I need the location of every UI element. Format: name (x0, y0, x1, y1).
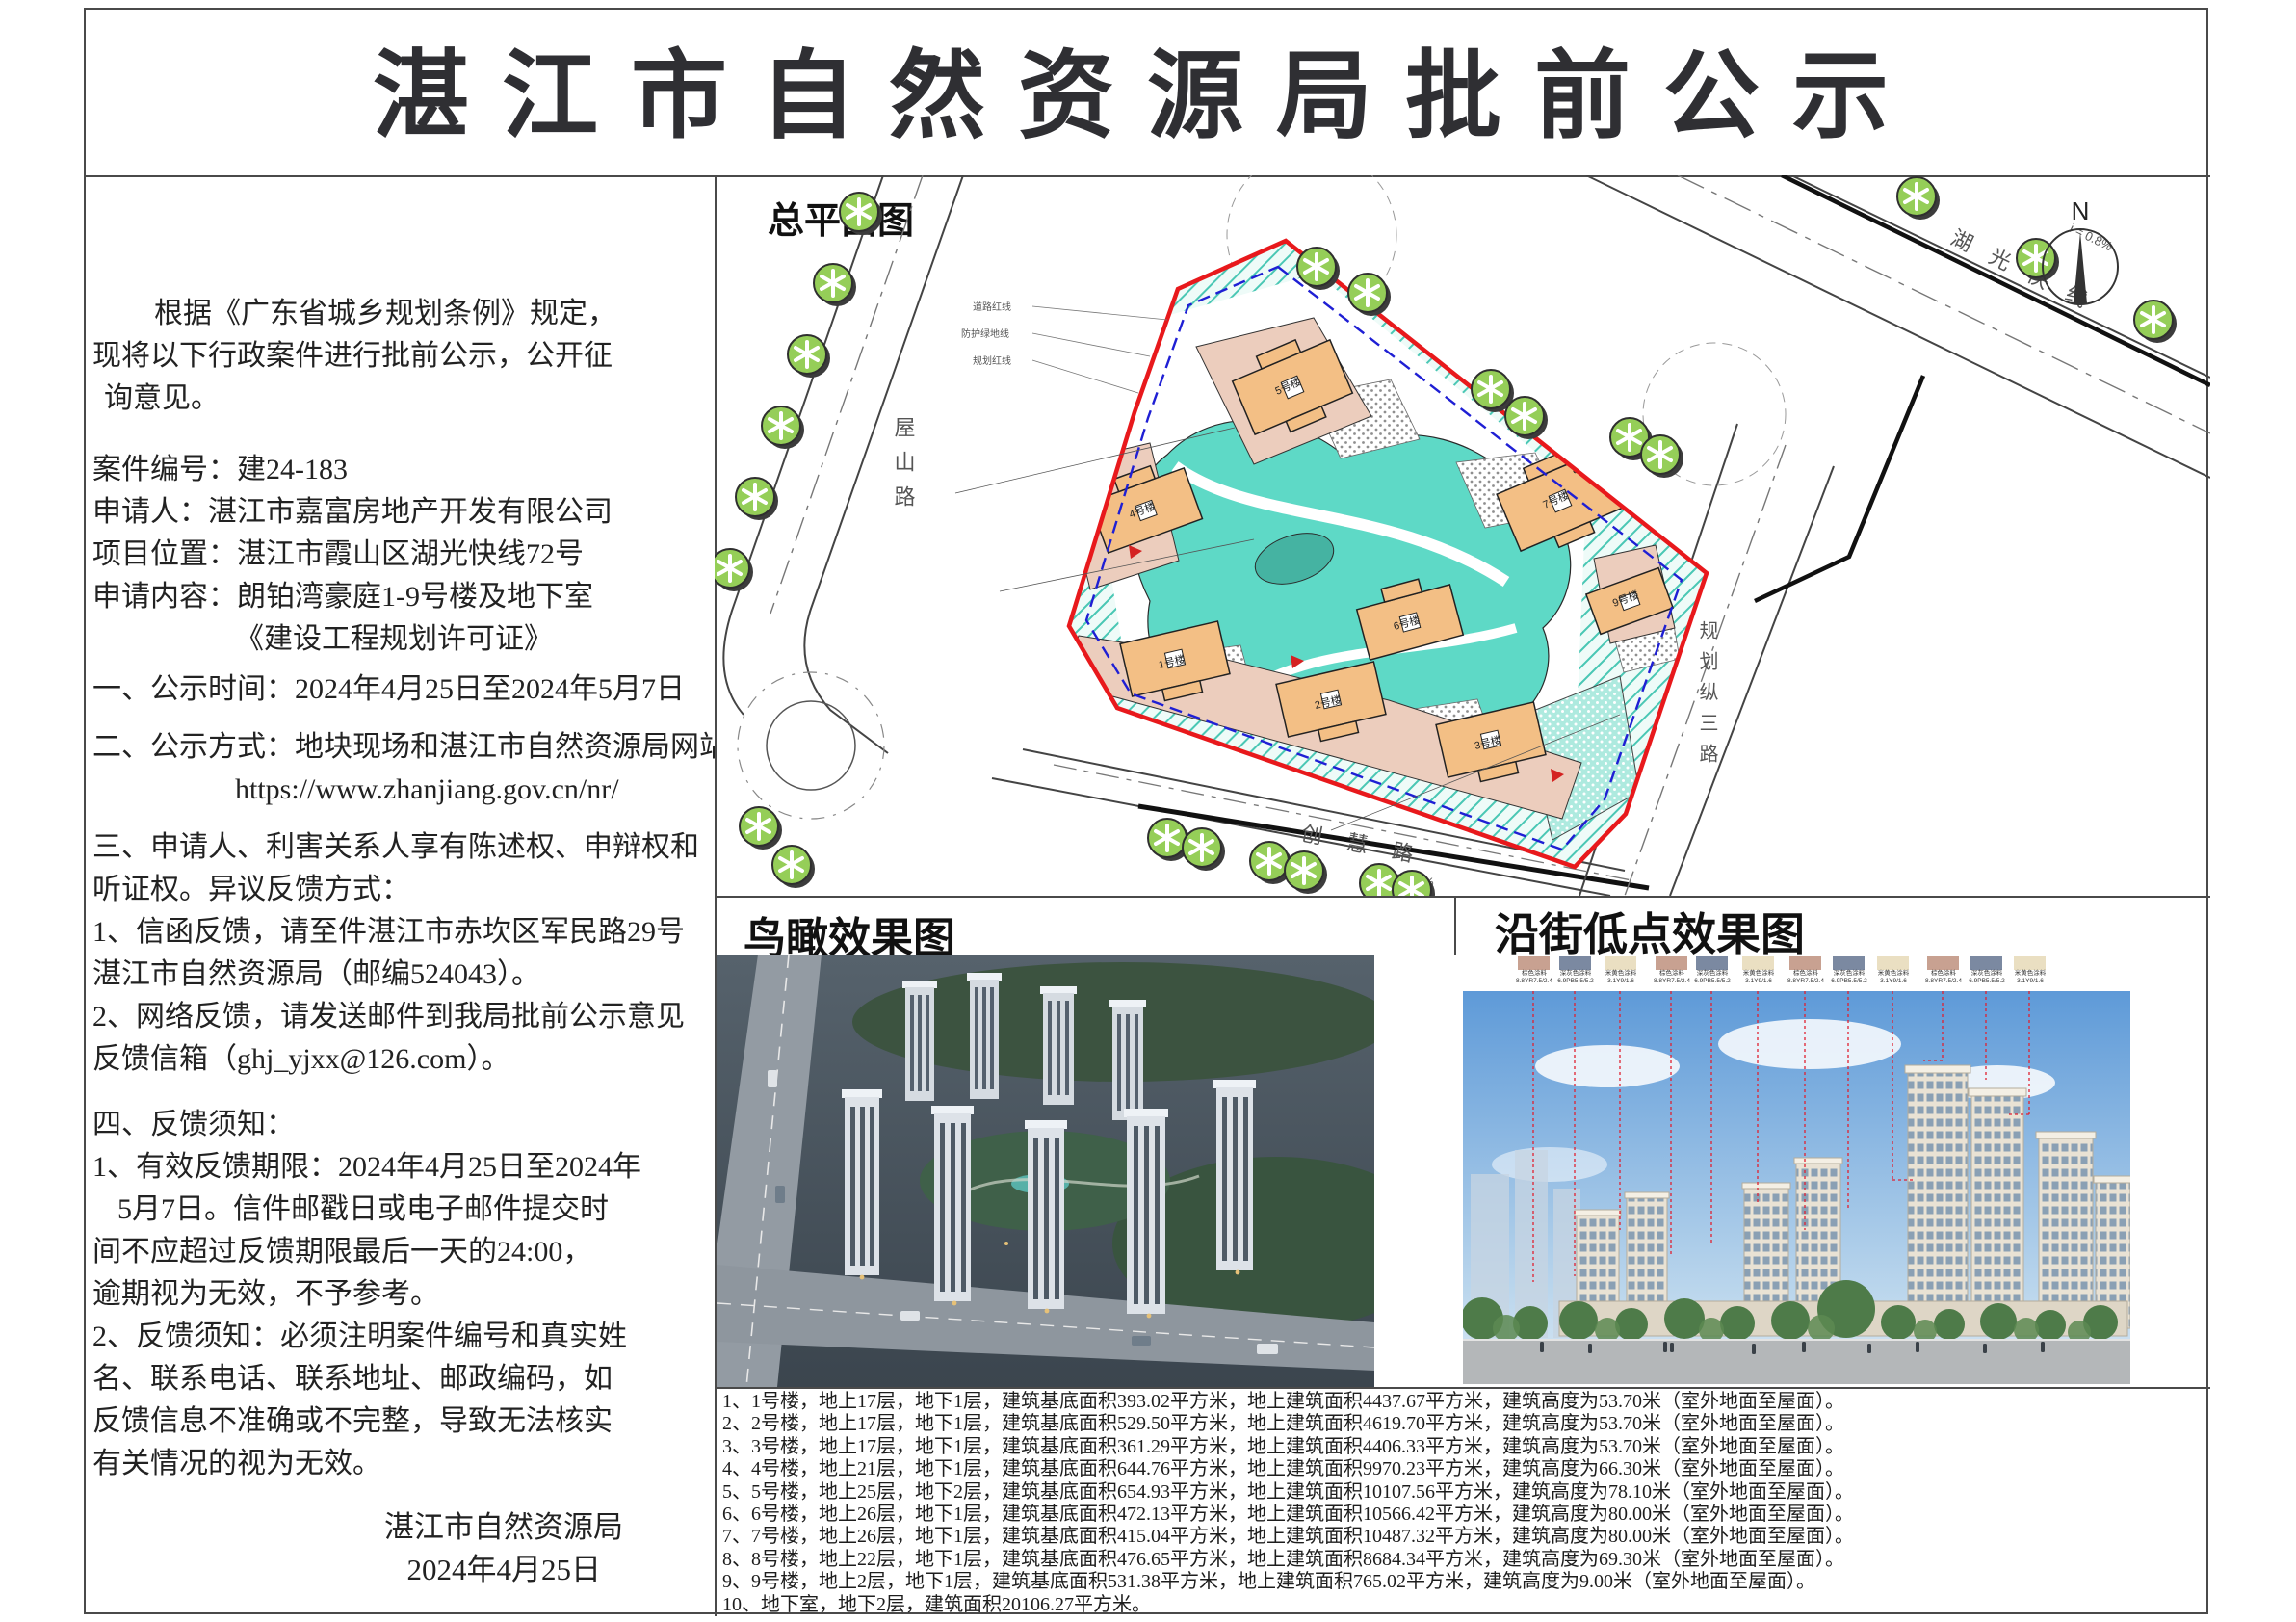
svg-text:防护绿地线: 防护绿地线 (961, 327, 1009, 340)
swatch-color (1559, 956, 1591, 970)
notice-line: 案件编号：建24-183 (92, 449, 715, 491)
signature-org: 湛江市自然资源局 (92, 1506, 715, 1549)
note-line: 1、1号楼，地上17层，地下1层，建筑基底面积393.02平方米，地上建筑面积4… (722, 1391, 2205, 1413)
plan-render-divider (715, 896, 2210, 898)
notice-line: 询意见。 (92, 378, 715, 420)
notice-line: 反馈信息不准确或不完整，导致无法核实 (92, 1400, 715, 1443)
notice-line: 2、反馈须知：必须注明案件编号和真实姓 (92, 1316, 715, 1358)
public-notice-sheet: 湛江市自然资源局批前公示 根据《广东省城乡规划条例》规定， 现将以下行政案件进行… (0, 0, 2296, 1622)
notice-line: 《建设工程规划许可证》 (92, 618, 715, 661)
notice-line: 1、信函反馈，请至件湛江市赤坎区军民路29号 (92, 911, 715, 954)
notice-line: 根据《广东省城乡规划条例》规定， (92, 293, 715, 335)
road-label-wushan: 屋山路 (892, 416, 916, 520)
note-line: 6、6号楼，地上26层，地下1层，建筑基底面积472.13平方米，地上建筑面积1… (722, 1504, 2205, 1526)
material-swatch: 棕色涂料8.8YR7.5/2.4 (1518, 956, 1550, 984)
material-swatch: 深灰色涂料6.9PB5.5/5.2 (1970, 956, 2002, 984)
material-swatch: 深灰色涂料6.9PB5.5/5.2 (1833, 956, 1865, 984)
material-swatch: 米黄色涂料3.1Y9/1.6 (1605, 956, 1636, 984)
note-line: 4、4号楼，地上21层，地下1层，建筑基底面积644.76平方米，地上建筑面积9… (722, 1458, 2205, 1480)
notice-line: 间不应超过反馈期限最后一天的24:00， (92, 1231, 715, 1273)
note-line: 8、8号楼，地上22层，地下1层，建筑基底面积476.65平方米，地上建筑面积8… (722, 1549, 2205, 1571)
notice-line: 有关情况的视为无效。 (92, 1443, 715, 1485)
notice-text-column: 根据《广东省城乡规划条例》规定， 现将以下行政案件进行批前公示，公开征 询意见。… (92, 177, 715, 1614)
note-line: 2、2号楼，地上17层，地下1层，建筑基底面积529.50平方米，地上建筑面积4… (722, 1413, 2205, 1435)
notice-line: 名、联系电话、联系地址、邮政编码，如 (92, 1358, 715, 1400)
slope-label-1: i = 0.8% (2068, 221, 2116, 253)
material-swatch: 米黄色涂料3.1Y9/1.6 (1877, 956, 1909, 984)
note-line: 9、9号楼，地上2层，地下1层，建筑基底面积531.38平方米，地上建筑面积76… (722, 1571, 2205, 1593)
svg-text:规划红线: 规划红线 (973, 354, 1011, 367)
material-swatch: 深灰色涂料6.9PB5.5/5.2 (1696, 956, 1728, 984)
render-panels-divider (1454, 896, 1456, 955)
svg-text:8号楼: 8号楼 (1570, 454, 1600, 477)
notice-line: 听证权。异议反馈方式： (92, 869, 715, 911)
notice-line: 二、公示方式：地块现场和湛江市自然资源局网站 (92, 726, 715, 769)
notice-line: 申请人：湛江市嘉富房地产开发有限公司 (92, 491, 715, 534)
material-swatch: 棕色涂料8.8YR7.5/2.4 (1789, 956, 1821, 984)
material-swatch: 棕色涂料8.8YR7.5/2.4 (1927, 956, 1959, 984)
swatch-color (1605, 956, 1636, 970)
swatch-color (1742, 956, 1774, 970)
swatch-color (1656, 956, 1687, 970)
swatch-color (1877, 956, 1909, 970)
swatch-color (2014, 956, 2046, 970)
material-swatch: 米黄色涂料3.1Y9/1.6 (2014, 956, 2046, 984)
note-line: 7、7号楼，地上26层，地下1层，建筑基底面积415.04平方米，地上建筑面积1… (722, 1526, 2205, 1548)
notice-line: https://www.zhanjiang.gov.cn/nr/ (92, 769, 715, 811)
site-plan-drawing: 1号楼 2号楼 3号楼 4号楼 5号楼 6号楼 7号楼 8号楼 9号楼 (715, 175, 2210, 896)
swatch-color (1696, 956, 1728, 970)
material-swatch: 深灰色涂料6.9PB5.5/5.2 (1559, 956, 1591, 984)
notice-line: 申请内容：朗铂湾豪庭1-9号楼及地下室 (92, 576, 715, 618)
material-swatch: 棕色涂料8.8YR7.5/2.4 (1656, 956, 1687, 984)
notice-line: 三、申请人、利害关系人享有陈述权、申辩权和 (92, 826, 715, 869)
street-road (1463, 1340, 2130, 1384)
notice-line: 四、反馈须知： (92, 1104, 715, 1146)
note-line: 5、5号楼，地上25层，地下2层，建筑基底面积654.93平方米，地上建筑面积1… (722, 1481, 2205, 1504)
notice-line: 反馈信箱（ghj_yjxx@126.com）。 (92, 1038, 715, 1081)
notice-line: 现将以下行政案件进行批前公示，公开征 (92, 335, 715, 378)
notice-line: 一、公示时间：2024年4月25日至2024年5月7日 (92, 668, 715, 711)
road-label-guihua3: 规划纵三路 (1696, 620, 1718, 774)
swatch-color (1833, 956, 1865, 970)
building-notes-list: 1、1号楼，地上17层，地下1层，建筑基底面积393.02平方米，地上建筑面积4… (722, 1391, 2205, 1616)
notice-line: 项目位置：湛江市霞山区湖光快线72号 (92, 534, 715, 576)
plan-annotations: 道路红线 防护绿地线 规划红线 (961, 301, 1167, 393)
swatch-color (1970, 956, 2002, 970)
notice-line: 逾期视为无效，不予参考。 (92, 1273, 715, 1316)
note-line: 3、3号楼，地上17层，地下1层，建筑基底面积361.29平方米，地上建筑面积4… (722, 1436, 2205, 1458)
page-title: 湛江市自然资源局批前公示 (84, 17, 2210, 157)
notice-line: 1、有效反馈期限：2024年4月25日至2024年 (92, 1146, 715, 1189)
material-swatch: 米黄色涂料3.1Y9/1.6 (1742, 956, 1774, 984)
street-view-label: 沿街低点效果图 (1495, 900, 1805, 963)
notes-divider (715, 1387, 2210, 1389)
swatch-color (1927, 956, 1959, 970)
notice-line: 湛江市自然资源局（邮编524043）。 (92, 954, 715, 996)
notice-line: 5月7日。信件邮戳日或电子邮件提交时 (92, 1189, 715, 1231)
notice-line: 2、网络反馈，请发送邮件到我局批前公示意见 (92, 996, 715, 1038)
note-line: 10、地下室，地下2层，建筑面积20106.27平方米。 (722, 1594, 2205, 1616)
svg-text:道路红线: 道路红线 (973, 301, 1011, 313)
svg-text:N: N (2072, 196, 2090, 225)
material-swatch-band: 棕色涂料8.8YR7.5/2.4 深灰色涂料6.9PB5.5/5.2 米黄色涂料… (1463, 955, 2130, 991)
signature-date: 2024年4月25日 (92, 1549, 715, 1591)
street-view-photo (1463, 991, 2130, 1384)
bird-view-photo (717, 955, 1374, 1387)
swatch-color (1789, 956, 1821, 970)
swatch-color (1518, 956, 1550, 970)
